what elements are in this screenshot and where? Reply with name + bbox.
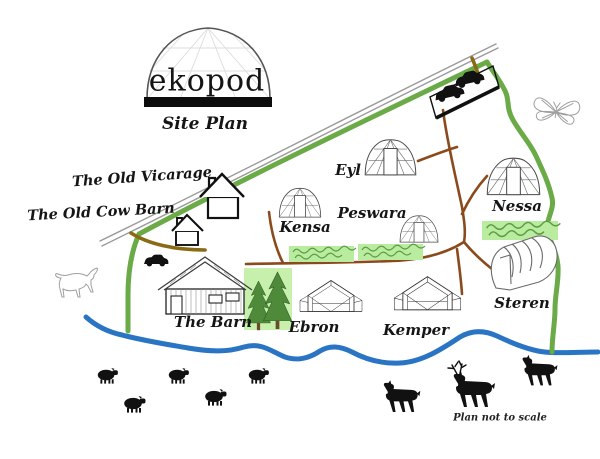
hedge-icon <box>358 244 425 260</box>
label-kensa: Kensa <box>279 218 330 236</box>
horse-icon <box>56 268 98 297</box>
sheep-icon <box>169 368 189 384</box>
river <box>86 317 598 363</box>
hedge-icon <box>482 221 560 240</box>
steren-polytunnel-icon <box>491 236 557 290</box>
scale-disclaimer: Plan not to scale <box>453 413 547 424</box>
eyl-dome-icon <box>365 140 416 175</box>
butterfly-icon <box>532 96 581 126</box>
label-steren: Steren <box>494 294 550 312</box>
sheep-icon <box>205 389 226 406</box>
hedge-icon <box>289 246 356 262</box>
nessa-dome-icon <box>487 158 539 194</box>
label-peswara: Peswara <box>337 204 406 222</box>
label-ebron: Ebron <box>289 318 340 336</box>
sheep-icon <box>249 368 269 384</box>
kensa-dome-icon <box>279 188 320 217</box>
stag-icon <box>448 361 495 407</box>
label-the-barn: The Barn <box>174 313 252 331</box>
label-eyl: Eyl <box>335 161 361 179</box>
kemper-lodge-icon <box>394 277 460 310</box>
car-icon <box>144 255 168 267</box>
deer-icon <box>523 355 558 385</box>
logo-subtitle: Site Plan <box>162 114 248 134</box>
deer-icon <box>384 380 420 412</box>
barn-drawing <box>158 257 252 314</box>
car-park <box>430 66 499 118</box>
sheep-flock <box>98 368 269 413</box>
site-plan-canvas: ekopod Site Plan The Old Vicarage The Ol… <box>0 0 600 459</box>
ebron-lodge-icon <box>300 281 362 312</box>
logo-brand-text: ekopod <box>149 64 265 99</box>
sheep-icon <box>98 368 118 384</box>
label-nessa: Nessa <box>492 197 542 215</box>
sheep-icon <box>124 396 145 413</box>
label-kemper: Kemper <box>383 321 449 339</box>
old-cow-barn-house <box>172 215 203 245</box>
